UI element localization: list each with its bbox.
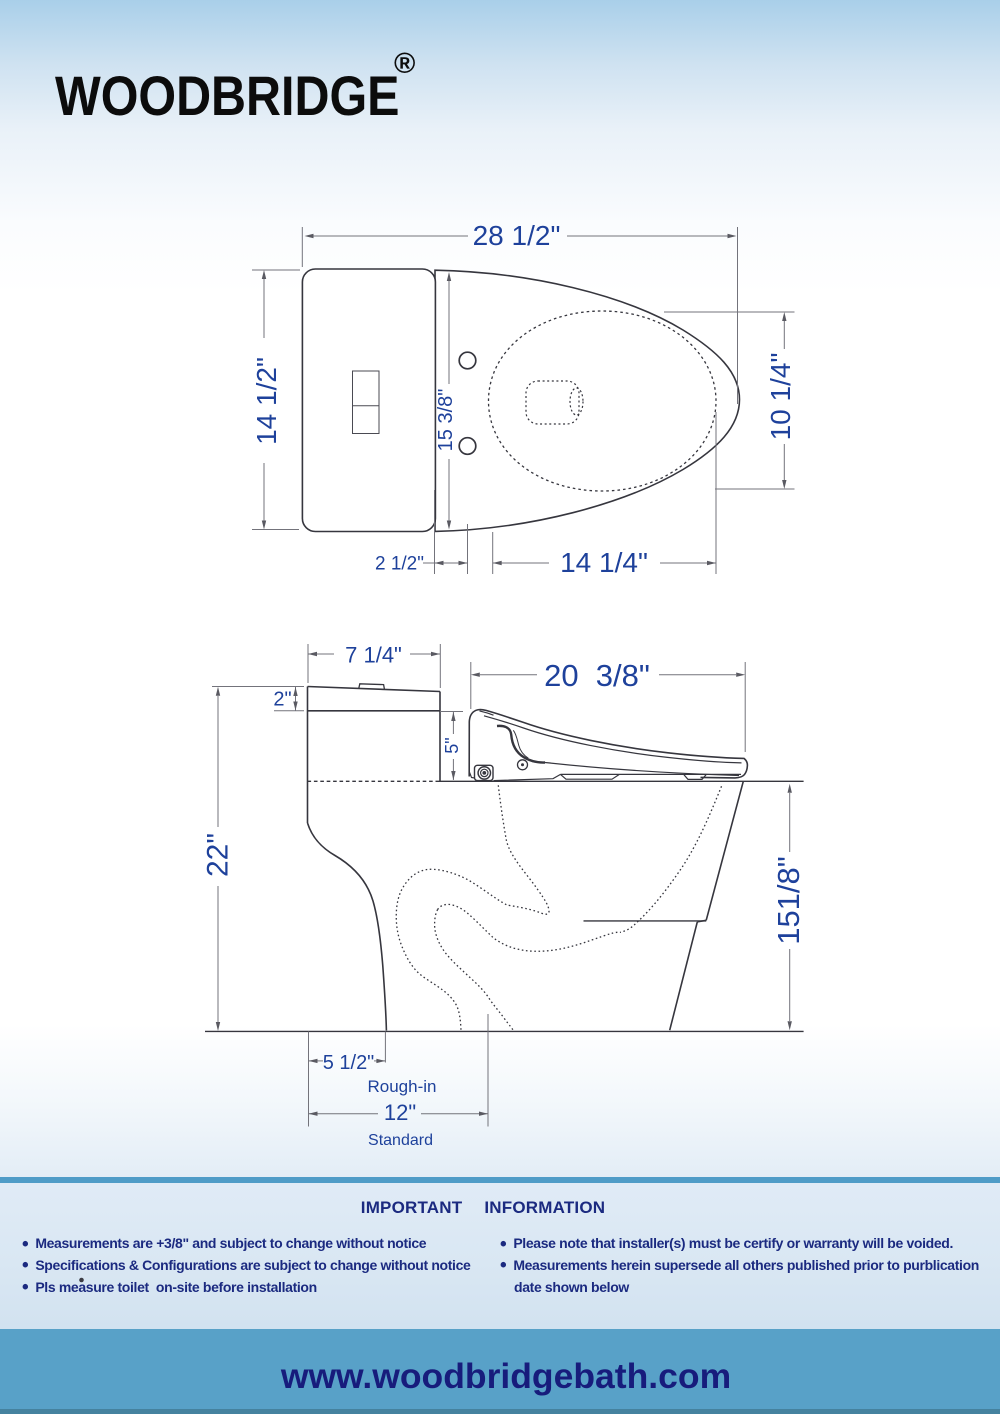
svg-text:14 1/2": 14 1/2" [251,357,282,445]
svg-text:10 1/4": 10 1/4" [765,353,796,441]
svg-text:151/8": 151/8" [771,856,806,945]
svg-text:20 3/8": 20 3/8" [544,658,650,693]
svg-text:15 3/8": 15 3/8" [435,389,457,452]
svg-text:28 1/2": 28 1/2" [473,220,561,251]
svg-text:Standard: Standard [368,1132,433,1149]
svg-text:7 1/4": 7 1/4" [345,643,402,668]
svg-text:22": 22" [202,833,235,877]
svg-text:14 1/4": 14 1/4" [560,547,648,578]
svg-text:Rough-in: Rough-in [368,1077,437,1096]
svg-text:2 1/2": 2 1/2" [375,554,424,575]
svg-text:5": 5" [442,737,462,753]
svg-text:12": 12" [384,1100,416,1125]
svg-text:5 1/2": 5 1/2" [323,1052,375,1074]
svg-text:2": 2" [273,689,291,711]
